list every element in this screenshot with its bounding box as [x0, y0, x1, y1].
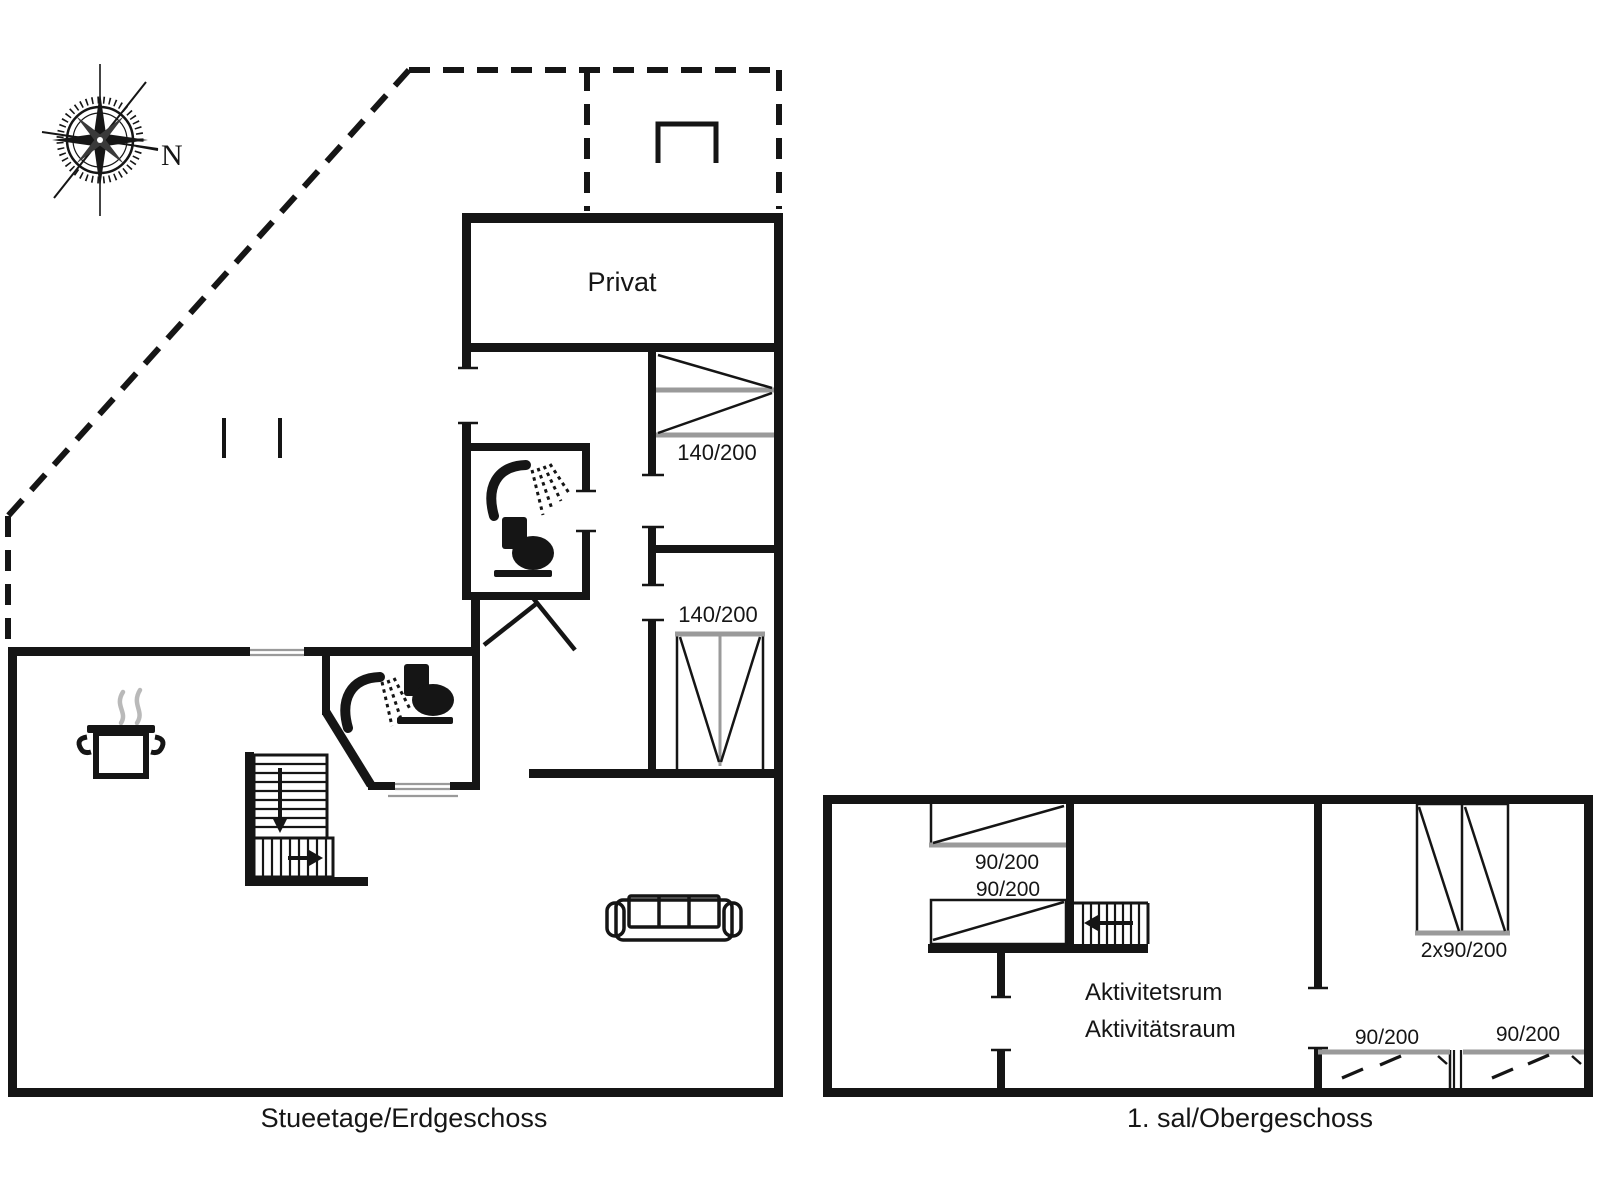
shower-icon	[491, 464, 569, 516]
upper-floor-caption: 1. sal/Obergeschoss	[1127, 1103, 1373, 1133]
wall-segment	[468, 592, 590, 600]
upper-floor-plan: 90/200 90/200	[823, 795, 1593, 1133]
wall-segment	[648, 352, 656, 475]
wall-segment	[648, 527, 656, 585]
wall-segment	[8, 647, 17, 1097]
bed-size-label: 90/200	[1496, 1023, 1560, 1046]
double-bed-symbol: 140/200	[656, 355, 774, 465]
wall-segment	[997, 953, 1005, 997]
attic-bed-symbol: 90/200	[1463, 1023, 1584, 1078]
wall-segment	[823, 795, 832, 1097]
double-bed-symbol: 140/200	[675, 602, 765, 769]
wall-segment	[1314, 804, 1322, 988]
floor-plan-drawing: N	[0, 0, 1600, 1200]
attic-bed-divider	[1454, 1050, 1461, 1088]
floorplan-page: N	[0, 0, 1600, 1200]
bed-size-label: 90/200	[975, 851, 1039, 874]
single-bed-symbol: 90/200	[929, 804, 1066, 874]
cooking-pot-icon	[79, 690, 163, 776]
sofa-icon	[607, 896, 741, 940]
wall-segment	[472, 656, 480, 790]
wall-segment	[8, 647, 250, 656]
plot-boundary-dashed	[8, 70, 779, 651]
wall-segment	[8, 1088, 783, 1097]
toilet-icon	[494, 517, 554, 577]
terrace-posts	[222, 418, 282, 458]
room-label-activity-de: Aktivitätsraum	[1085, 1016, 1236, 1043]
compass-rose-icon: N	[42, 64, 183, 216]
wall-segment	[1584, 795, 1593, 1097]
wall-segment	[322, 647, 330, 715]
wall-segment	[823, 795, 1593, 804]
room-label-activity-da: Aktivitetsrum	[1085, 979, 1222, 1006]
toilet-icon	[397, 664, 454, 724]
wall-segment	[582, 531, 590, 592]
attic-bed-symbol: 90/200	[1318, 1026, 1450, 1088]
wall-segment	[322, 647, 480, 656]
wall-segment	[928, 944, 1148, 953]
stairs-icon	[1074, 903, 1148, 944]
wall-segment	[823, 1088, 1593, 1097]
door-swings	[484, 598, 575, 650]
room-label-privat: Privat	[587, 267, 657, 297]
chimney-symbol	[658, 124, 716, 163]
stairs-down-icon	[254, 755, 333, 877]
walls	[8, 213, 783, 1097]
wall-segment	[471, 600, 480, 647]
wall-segment	[529, 769, 783, 778]
compass-north-label: N	[161, 139, 183, 172]
wall-segment	[648, 620, 656, 769]
wall-segment	[462, 213, 783, 223]
bed-size-label: 140/200	[678, 602, 758, 627]
bed-size-label: 140/200	[677, 440, 757, 465]
wall-segment	[468, 443, 590, 451]
bed-size-label: 2x90/200	[1421, 939, 1507, 962]
wall-segment	[997, 1050, 1005, 1088]
wall-segment	[648, 545, 783, 553]
single-bed-symbol: 90/200	[931, 878, 1066, 944]
ground-floor-caption: Stueetage/Erdgeschoss	[261, 1103, 548, 1133]
bed-size-label: 90/200	[976, 878, 1040, 901]
wall-segment	[450, 782, 480, 790]
ground-floor-plan: 140/200 140/200	[8, 70, 783, 1133]
wall-segment	[462, 343, 783, 352]
bed-size-label: 90/200	[1355, 1026, 1419, 1049]
wall-segment	[582, 443, 590, 491]
double-wardrobe-bed-symbol: 2x90/200	[1415, 804, 1510, 962]
wall-segment	[304, 647, 322, 656]
